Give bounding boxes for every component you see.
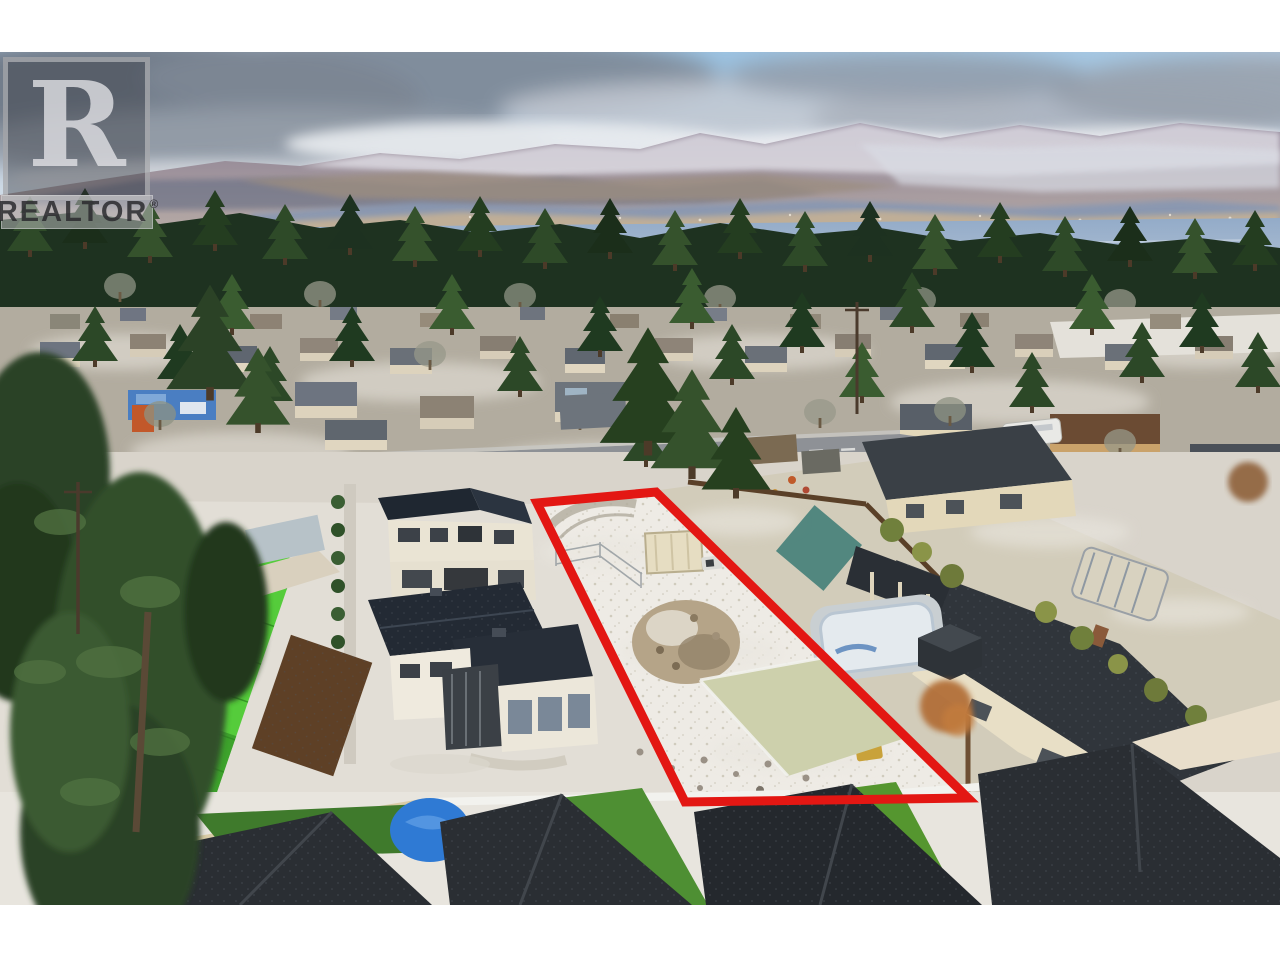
realtor-logo-letter: R xyxy=(27,66,125,184)
rubble-pile xyxy=(632,600,740,684)
registered-trademark-symbol: ® xyxy=(149,197,158,211)
aerial-photo xyxy=(0,52,1280,905)
realtor-logo: R xyxy=(3,57,150,200)
storage-container xyxy=(645,531,703,574)
realtor-wordmark: REALTOR® xyxy=(1,195,153,229)
screenshot-canvas: R REALTOR® xyxy=(0,0,1280,960)
realtor-watermark: R REALTOR® xyxy=(3,57,150,225)
aerial-photo-painting xyxy=(0,52,1280,905)
